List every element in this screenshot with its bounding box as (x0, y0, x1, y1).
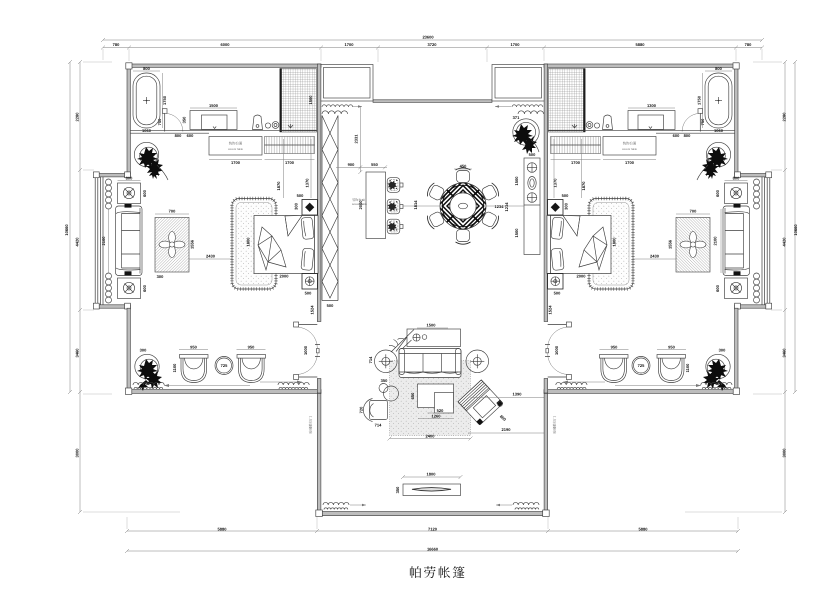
svg-text:1000: 1000 (303, 345, 308, 355)
svg-text:600: 600 (715, 189, 720, 196)
svg-text:1750: 1750 (162, 95, 167, 105)
svg-text:450: 450 (460, 164, 467, 169)
svg-text:700: 700 (690, 209, 697, 214)
svg-text:2000: 2000 (577, 274, 587, 279)
svg-text:5880: 5880 (639, 526, 649, 531)
svg-text:750: 750 (700, 118, 705, 125)
svg-text:1700: 1700 (571, 160, 581, 165)
svg-text:1556: 1556 (190, 239, 195, 249)
svg-text:7120: 7120 (428, 526, 438, 531)
svg-text:10660: 10660 (793, 224, 798, 236)
svg-text:1800: 1800 (246, 237, 251, 247)
svg-text:1100: 1100 (172, 363, 177, 372)
svg-text:300: 300 (719, 348, 726, 353)
svg-text:5880: 5880 (636, 42, 646, 47)
svg-text:3720: 3720 (428, 42, 438, 47)
svg-text:800: 800 (733, 176, 740, 181)
svg-text:1524: 1524 (548, 305, 553, 315)
svg-text:350: 350 (381, 378, 388, 383)
svg-text:2430: 2430 (206, 254, 216, 259)
svg-text:500: 500 (554, 291, 561, 296)
svg-text:3000: 3000 (75, 448, 80, 458)
svg-text:700: 700 (169, 209, 176, 214)
svg-text:300: 300 (294, 202, 299, 209)
svg-text:10660: 10660 (64, 224, 69, 236)
svg-text:725: 725 (221, 363, 228, 368)
svg-text:3460: 3460 (75, 348, 80, 358)
svg-text:371: 371 (513, 115, 520, 120)
svg-text:1800: 1800 (612, 237, 617, 247)
svg-text:300: 300 (564, 202, 569, 209)
svg-text:600: 600 (673, 133, 680, 138)
svg-text:4420: 4420 (782, 237, 787, 247)
svg-text:Accent Table: Accent Table (228, 148, 243, 151)
svg-text:2400: 2400 (426, 434, 436, 439)
svg-text:950: 950 (611, 345, 618, 350)
svg-text:500: 500 (297, 193, 304, 198)
svg-text:600: 600 (715, 284, 720, 291)
svg-text:3000: 3000 (782, 448, 787, 458)
svg-text:1556: 1556 (668, 239, 673, 249)
svg-text:800: 800 (175, 133, 182, 138)
svg-text:5880: 5880 (218, 526, 228, 531)
svg-text:800: 800 (126, 176, 133, 181)
svg-text:6000: 6000 (221, 42, 231, 47)
svg-text:500: 500 (529, 152, 536, 157)
svg-text:1700: 1700 (345, 42, 355, 47)
svg-text:1100: 1100 (685, 363, 690, 372)
svg-text:2100: 2100 (101, 236, 106, 246)
svg-text:1060: 1060 (714, 128, 724, 133)
svg-text:1700: 1700 (285, 160, 295, 165)
svg-text:800: 800 (684, 133, 691, 138)
svg-text:3460: 3460 (782, 348, 787, 358)
svg-text:950: 950 (248, 345, 255, 350)
svg-text:1300: 1300 (647, 103, 657, 108)
svg-text:Accent Table: Accent Table (622, 148, 637, 151)
svg-text:1870: 1870 (276, 181, 281, 191)
svg-text:950: 950 (190, 345, 197, 350)
svg-text:550: 550 (371, 162, 378, 167)
svg-text:1000: 1000 (554, 345, 559, 355)
svg-text:1234: 1234 (504, 202, 509, 212)
svg-text:1700: 1700 (231, 160, 241, 165)
svg-text:1800: 1800 (427, 472, 437, 477)
svg-text:650: 650 (410, 392, 415, 399)
svg-text:720: 720 (359, 406, 364, 413)
svg-text:2190: 2190 (502, 427, 512, 432)
svg-text:2430: 2430 (650, 254, 660, 259)
svg-text:1500: 1500 (514, 228, 519, 238)
svg-text:500: 500 (327, 303, 334, 308)
svg-text:600: 600 (142, 189, 147, 196)
svg-text:800: 800 (143, 66, 150, 71)
svg-text:1700: 1700 (511, 42, 521, 47)
svg-text:350: 350 (182, 116, 187, 123)
svg-text:750: 750 (157, 118, 162, 125)
svg-text:16660: 16660 (427, 546, 439, 551)
svg-text:780: 780 (745, 42, 752, 47)
svg-text:2280: 2280 (75, 112, 80, 122)
svg-text:714: 714 (375, 423, 382, 428)
svg-text:600: 600 (187, 133, 194, 138)
svg-text:900: 900 (348, 162, 355, 167)
svg-text:1524: 1524 (310, 305, 315, 315)
svg-text:1234: 1234 (495, 204, 505, 209)
svg-text:2000: 2000 (358, 200, 363, 210)
svg-text:350: 350 (395, 486, 400, 493)
svg-text:500: 500 (562, 193, 569, 198)
svg-text:600: 600 (142, 284, 147, 291)
svg-text:1500: 1500 (427, 323, 437, 328)
svg-text:780: 780 (113, 42, 120, 47)
svg-text:1370: 1370 (305, 178, 310, 188)
svg-text:800: 800 (715, 66, 722, 71)
svg-text:714: 714 (368, 356, 373, 363)
svg-text:500: 500 (305, 291, 312, 296)
svg-text:1500: 1500 (308, 95, 313, 105)
svg-text:1370: 1370 (553, 178, 558, 188)
svg-text:950: 950 (668, 345, 675, 350)
svg-text:1260: 1260 (432, 414, 442, 419)
svg-text:2331: 2331 (353, 134, 358, 144)
svg-text:520: 520 (437, 408, 444, 413)
svg-text:2280: 2280 (782, 112, 787, 122)
svg-text:4420: 4420 (75, 237, 80, 247)
svg-text:2100: 2100 (713, 236, 718, 246)
svg-text:300: 300 (140, 348, 147, 353)
svg-text:1750: 1750 (697, 95, 702, 105)
svg-text:1500: 1500 (209, 103, 219, 108)
svg-text:725: 725 (638, 363, 645, 368)
svg-text:300: 300 (157, 274, 164, 279)
svg-text:1814: 1814 (413, 200, 418, 210)
svg-text:2000: 2000 (280, 274, 290, 279)
svg-text:1500: 1500 (514, 176, 519, 186)
svg-text:1700: 1700 (625, 160, 635, 165)
svg-text:1390: 1390 (513, 392, 523, 397)
svg-text:23600: 23600 (422, 35, 434, 40)
